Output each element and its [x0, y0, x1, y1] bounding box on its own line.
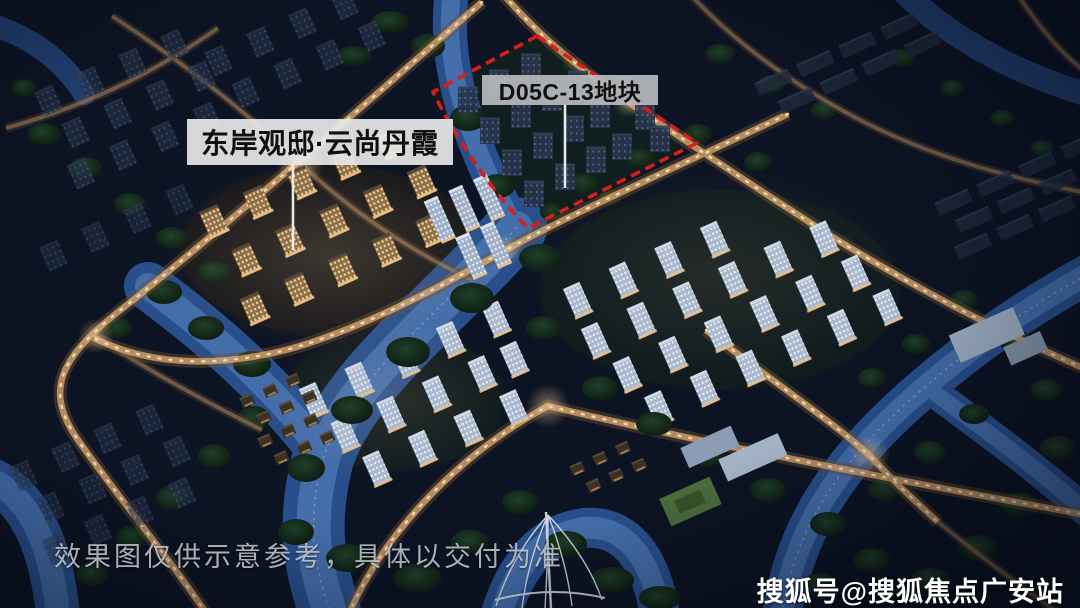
plot-label-d05c-13: D05C-13地块: [482, 75, 658, 105]
sohu-watermark: 搜狐号@搜狐焦点广安站: [757, 570, 1064, 608]
aerial-night-render-scene: 东岸观邸·云尚丹霞 D05C-13地块 效果图仅供示意参考，具体以交付为准 搜狐…: [0, 0, 1080, 608]
disclaimer-text: 效果图仅供示意参考，具体以交付为准: [54, 535, 564, 574]
project-label: 东岸观邸·云尚丹霞: [187, 119, 453, 165]
